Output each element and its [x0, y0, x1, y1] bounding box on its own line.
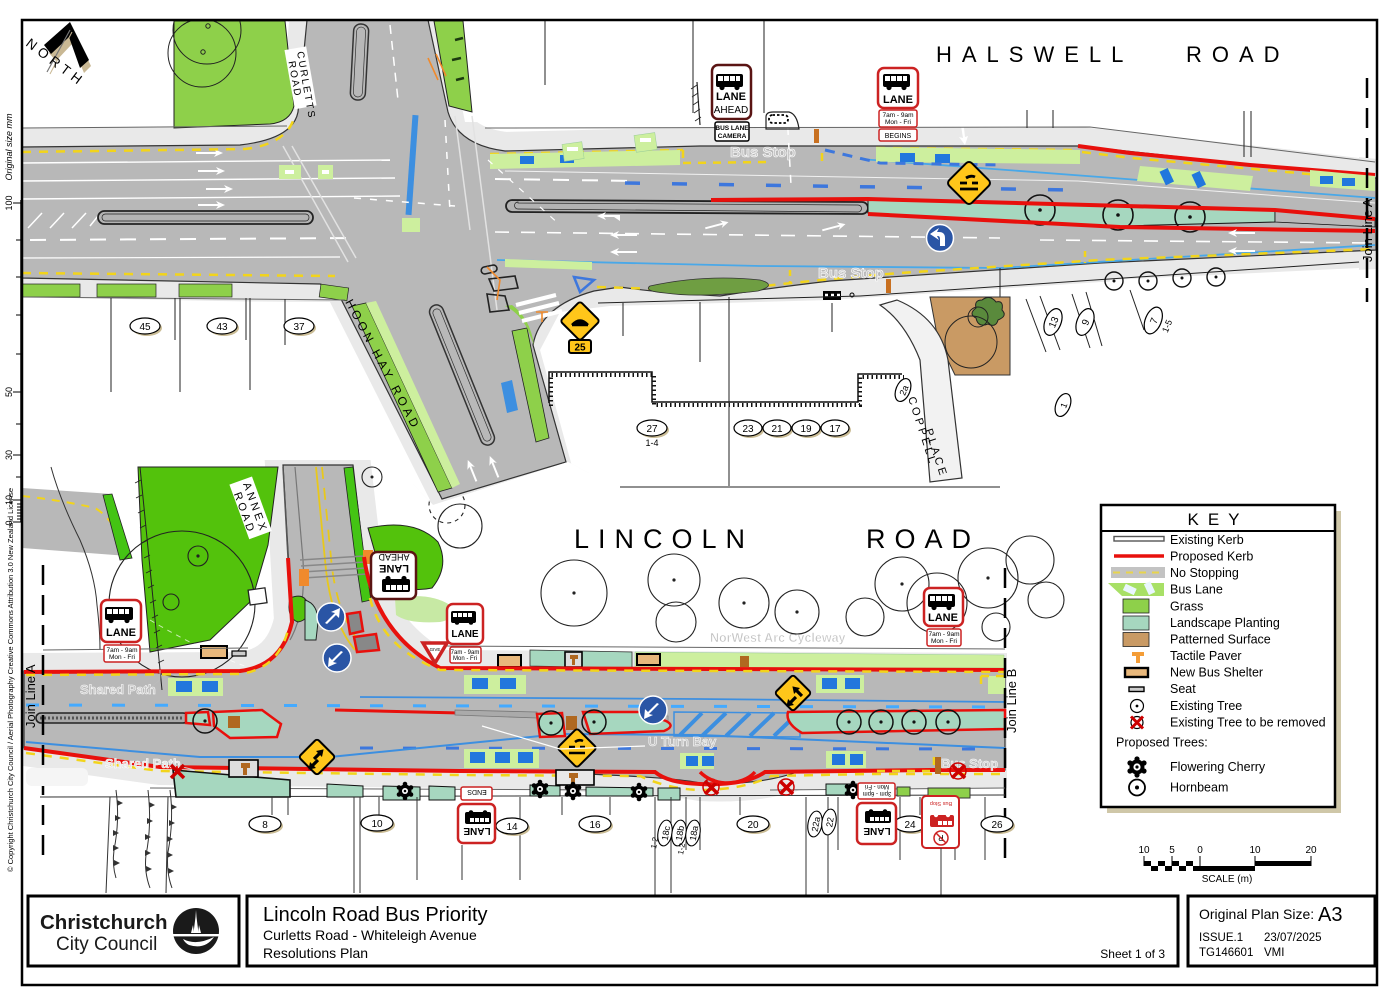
- svg-text:Proposed Kerb: Proposed Kerb: [1170, 550, 1253, 564]
- svg-text:Bus Stop: Bus Stop: [730, 144, 796, 161]
- svg-text:30: 30: [4, 450, 14, 460]
- svg-text:LANE: LANE: [863, 825, 891, 836]
- svg-text:0: 0: [1197, 845, 1203, 856]
- svg-text:City Council: City Council: [56, 934, 157, 955]
- svg-text:LANE: LANE: [379, 562, 409, 574]
- svg-text:7am - 9am: 7am - 9am: [928, 631, 959, 638]
- svg-text:A3: A3: [1318, 904, 1342, 926]
- svg-text:16: 16: [589, 820, 601, 831]
- svg-text:BUS LANE: BUS LANE: [715, 125, 749, 132]
- svg-text:Flowering Cherry: Flowering Cherry: [1170, 760, 1266, 774]
- svg-text:Shared Path: Shared Path: [105, 756, 181, 771]
- svg-text:Join Line A: Join Line A: [23, 664, 38, 728]
- svg-text:Curletts Road - Whiteleigh Ave: Curletts Road - Whiteleigh Avenue: [263, 927, 477, 943]
- svg-text:20: 20: [747, 820, 759, 831]
- svg-text:Mon - Fri: Mon - Fri: [865, 783, 889, 789]
- svg-text:Original size mm: Original size mm: [4, 113, 14, 181]
- svg-text:Landscape Planting: Landscape Planting: [1170, 616, 1280, 630]
- svg-text:LANE: LANE: [883, 94, 913, 106]
- svg-text:NorWest Arc Cycleway: NorWest Arc Cycleway: [710, 631, 846, 645]
- svg-text:SCALE (m): SCALE (m): [1202, 874, 1253, 885]
- svg-text:19: 19: [800, 424, 812, 435]
- svg-text:TG146601: TG146601: [1199, 947, 1253, 959]
- svg-text:Bus Stop: Bus Stop: [930, 800, 952, 806]
- svg-text:ROAD: ROAD: [1186, 42, 1290, 67]
- svg-text:Resolutions Plan: Resolutions Plan: [263, 945, 368, 961]
- svg-text:Join Line B: Join Line B: [1004, 669, 1019, 733]
- svg-text:Bus Stop: Bus Stop: [818, 265, 884, 282]
- svg-text:KEY: KEY: [1187, 510, 1248, 529]
- svg-text:23/07/2025: 23/07/2025: [1264, 932, 1322, 944]
- svg-text:LANE: LANE: [463, 825, 491, 836]
- svg-text:50: 50: [4, 387, 14, 397]
- svg-text:21: 21: [771, 424, 783, 435]
- svg-text:Christchurch: Christchurch: [40, 911, 168, 934]
- svg-text:Lincoln Road Bus Priority: Lincoln Road Bus Priority: [263, 904, 488, 926]
- svg-text:17: 17: [829, 424, 841, 435]
- svg-text:100: 100: [4, 195, 14, 210]
- svg-text:GIVE: GIVE: [430, 647, 441, 652]
- svg-text:3pm - 6pm: 3pm - 6pm: [863, 790, 892, 796]
- svg-text:Hornbeam: Hornbeam: [1170, 781, 1228, 795]
- svg-text:© Copyright Christchurch City: © Copyright Christchurch City Council / …: [6, 488, 15, 872]
- svg-text:10: 10: [1138, 845, 1150, 856]
- svg-text:Sheet 1 of 3: Sheet 1 of 3: [1100, 947, 1165, 961]
- svg-text:8: 8: [262, 820, 268, 831]
- svg-text:No Stopping: No Stopping: [1170, 566, 1239, 580]
- svg-text:Tactile Paver: Tactile Paver: [1170, 649, 1242, 663]
- svg-text:Mon - Fri: Mon - Fri: [109, 654, 135, 661]
- svg-text:LANE: LANE: [106, 627, 136, 639]
- svg-text:HALSWELL: HALSWELL: [936, 42, 1133, 67]
- svg-text:LANE: LANE: [716, 91, 746, 103]
- svg-text:22: 22: [824, 816, 836, 828]
- svg-text:5: 5: [1169, 845, 1175, 856]
- svg-text:LANE: LANE: [928, 612, 958, 624]
- svg-text:20: 20: [1305, 845, 1317, 856]
- svg-text:27: 27: [646, 424, 658, 435]
- svg-text:26: 26: [991, 820, 1003, 831]
- svg-text:Bus Lane: Bus Lane: [1170, 583, 1223, 597]
- svg-text:14: 14: [506, 822, 518, 833]
- svg-text:Grass: Grass: [1170, 600, 1203, 614]
- svg-text:24: 24: [904, 820, 916, 831]
- svg-text:Join Line A: Join Line A: [1360, 198, 1375, 262]
- svg-text:23: 23: [742, 424, 754, 435]
- svg-text:LANE: LANE: [451, 629, 479, 640]
- svg-text:10: 10: [371, 819, 383, 830]
- svg-text:CAMERA: CAMERA: [718, 133, 747, 140]
- svg-text:Seat: Seat: [1170, 682, 1196, 696]
- svg-text:Existing Kerb: Existing Kerb: [1170, 533, 1244, 547]
- svg-text:7am - 9am: 7am - 9am: [106, 647, 137, 654]
- svg-text:ISSUE.1: ISSUE.1: [1199, 932, 1243, 944]
- svg-text:Mon - Fri: Mon - Fri: [885, 119, 911, 126]
- svg-text:Existing Tree: Existing Tree: [1170, 699, 1242, 713]
- svg-text:7am - 9am: 7am - 9am: [882, 112, 913, 119]
- svg-text:10: 10: [1249, 845, 1261, 856]
- svg-text:New Bus Shelter: New Bus Shelter: [1170, 666, 1263, 680]
- svg-text:AHEAD: AHEAD: [378, 552, 410, 562]
- svg-text:Original Plan Size:: Original Plan Size:: [1199, 906, 1314, 922]
- svg-text:45: 45: [139, 322, 151, 333]
- svg-text:Existing Tree to be removed: Existing Tree to be removed: [1170, 716, 1326, 730]
- svg-text:VMI: VMI: [1264, 947, 1284, 959]
- svg-text:Shared Path: Shared Path: [80, 682, 156, 697]
- svg-text:1-4: 1-4: [645, 438, 658, 448]
- svg-text:AHEAD: AHEAD: [714, 105, 748, 116]
- svg-text:LINCOLN: LINCOLN: [574, 524, 754, 554]
- svg-text:ENDS: ENDS: [467, 788, 487, 795]
- svg-text:25: 25: [574, 343, 586, 354]
- svg-text:Proposed Trees:: Proposed Trees:: [1116, 736, 1208, 750]
- svg-text:Patterned Surface: Patterned Surface: [1170, 633, 1271, 647]
- svg-text:BEGINS: BEGINS: [885, 133, 912, 140]
- svg-text:37: 37: [293, 322, 305, 333]
- svg-text:ROAD: ROAD: [866, 524, 980, 554]
- svg-text:Mon - Fri: Mon - Fri: [931, 638, 957, 645]
- svg-text:Mon - Fri: Mon - Fri: [453, 656, 477, 662]
- svg-text:U Turn Bay: U Turn Bay: [648, 734, 717, 749]
- svg-text:43: 43: [216, 322, 228, 333]
